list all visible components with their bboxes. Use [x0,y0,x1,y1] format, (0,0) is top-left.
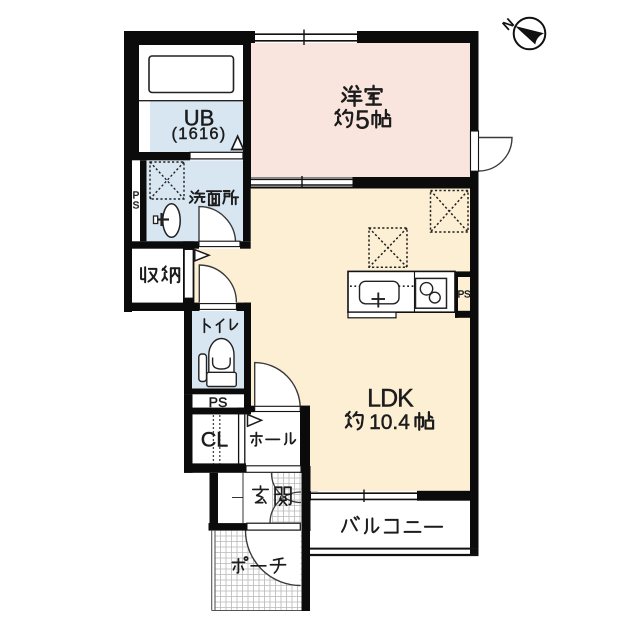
svg-text:(1616): (1616) [172,125,227,143]
svg-text:5: 5 [355,105,369,135]
svg-text:LDK: LDK [367,385,414,413]
svg-text:CL: CL [201,428,229,452]
svg-text:10.4: 10.4 [369,411,410,434]
svg-text:PS: PS [458,290,471,301]
svg-text:S: S [133,201,140,212]
svg-text:PS: PS [209,394,228,410]
